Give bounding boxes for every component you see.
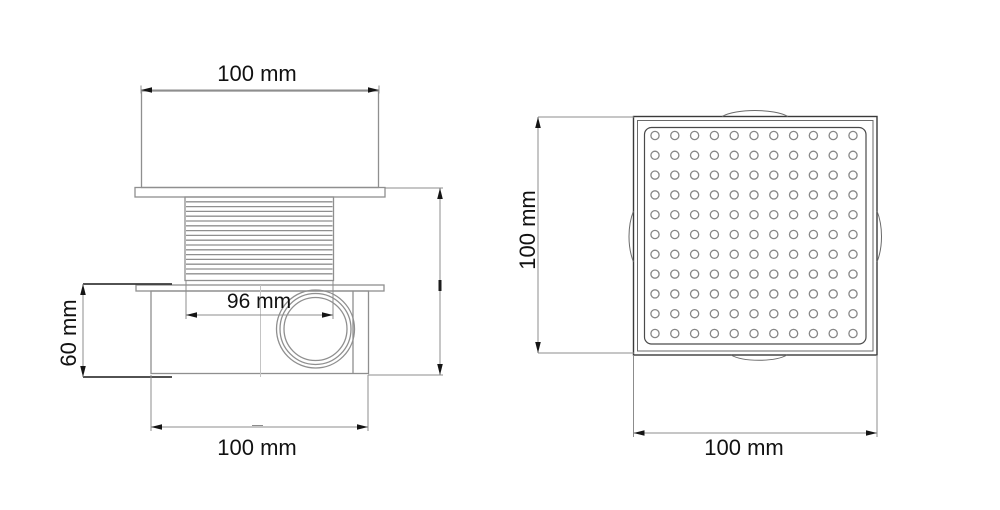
grate-hole	[829, 191, 837, 199]
grate-hole	[691, 270, 699, 278]
top-view: 100 mm 100 mm	[515, 111, 882, 461]
grate-hole	[730, 230, 738, 238]
grate-hole	[730, 250, 738, 258]
grate-hole	[790, 310, 798, 318]
corrugated-riser	[185, 197, 334, 281]
grate-hole	[651, 230, 659, 238]
bottom-tab	[731, 355, 787, 360]
grate-hole	[809, 310, 817, 318]
grate-hole	[750, 230, 758, 238]
grate-hole	[651, 191, 659, 199]
side-view: 100 mm 96 mm 60 mm 100 mm	[56, 61, 443, 460]
grate-hole	[691, 329, 699, 337]
grate-hole	[750, 171, 758, 179]
grate-hole	[849, 250, 857, 258]
grate-hole	[651, 270, 659, 278]
grate-hole	[790, 171, 798, 179]
grate-hole	[770, 310, 778, 318]
grate-hole	[809, 329, 817, 337]
grate-hole	[790, 131, 798, 139]
grate-hole	[770, 230, 778, 238]
grate-hole	[671, 211, 679, 219]
grate-hole	[730, 329, 738, 337]
grate-hole	[849, 230, 857, 238]
grate-hole	[710, 310, 718, 318]
dim-label-grate-width: 100 mm	[704, 435, 783, 460]
grate-hole	[790, 329, 798, 337]
grate-hole	[790, 270, 798, 278]
dimension-height: 60 mm	[56, 284, 172, 377]
dimension-grate-height: 100 mm	[515, 117, 634, 353]
grate-hole	[809, 250, 817, 258]
dim-label-height: 60 mm	[56, 299, 81, 366]
dimension-right-unlabeled	[368, 188, 443, 375]
grate-hole	[730, 171, 738, 179]
grate-hole	[849, 171, 857, 179]
grate-hole	[809, 290, 817, 298]
grate-hole	[710, 290, 718, 298]
outlet-pipe-inner-ring	[284, 298, 347, 361]
grate-hole	[691, 191, 699, 199]
drain-cap	[142, 91, 379, 188]
dim-label-top-width: 100 mm	[217, 61, 296, 86]
grate-hole	[710, 191, 718, 199]
grate-hole	[730, 211, 738, 219]
grate-hole	[770, 290, 778, 298]
grate-hole	[691, 230, 699, 238]
grate-hole	[849, 270, 857, 278]
grate-hole	[770, 329, 778, 337]
grate-hole	[750, 211, 758, 219]
grate-hole	[809, 131, 817, 139]
technical-drawing: 100 mm 96 mm 60 mm 100 mm	[0, 0, 1000, 505]
grate-hole	[750, 191, 758, 199]
riser-ribs	[186, 202, 333, 274]
grate-hole	[651, 310, 659, 318]
dimension-bottom-width: 100 mm	[151, 375, 368, 460]
grate-hole	[710, 230, 718, 238]
grate-hole	[790, 211, 798, 219]
grate-hole	[770, 131, 778, 139]
grate-hole	[691, 250, 699, 258]
grate-hole	[829, 211, 837, 219]
grate-hole	[809, 211, 817, 219]
grate-hole	[770, 171, 778, 179]
grate-hole	[849, 191, 857, 199]
grate-hole	[671, 230, 679, 238]
grate-hole	[849, 211, 857, 219]
grate-hole	[691, 171, 699, 179]
grate-hole	[710, 131, 718, 139]
dim-label-bottom-width: 100 mm	[217, 435, 296, 460]
grate-hole	[770, 151, 778, 159]
grate-hole	[750, 131, 758, 139]
grate-hole	[770, 211, 778, 219]
grate-hole	[730, 310, 738, 318]
grate-hole	[691, 131, 699, 139]
grate-hole	[651, 250, 659, 258]
grate-hole	[829, 250, 837, 258]
grate-hole	[651, 211, 659, 219]
grate-hole	[790, 191, 798, 199]
grate-hole	[651, 290, 659, 298]
grate-hole	[730, 270, 738, 278]
grate-hole	[790, 230, 798, 238]
grate-hole	[671, 270, 679, 278]
grate-hole	[829, 171, 837, 179]
grate-hole	[790, 290, 798, 298]
grate-hole	[809, 171, 817, 179]
grate-hole	[849, 310, 857, 318]
grate-hole	[809, 151, 817, 159]
grate-hole	[750, 310, 758, 318]
grate-hole	[730, 131, 738, 139]
grate-hole	[671, 290, 679, 298]
grate-hole	[691, 151, 699, 159]
dim-label-riser-width: 96 mm	[227, 290, 291, 313]
grate-hole	[829, 329, 837, 337]
grate-hole	[710, 211, 718, 219]
grate-hole	[671, 131, 679, 139]
grate-hole	[770, 250, 778, 258]
grate-hole	[730, 151, 738, 159]
grate-hole	[651, 329, 659, 337]
grate-holes	[651, 131, 857, 337]
grate-hole	[710, 171, 718, 179]
grate-hole	[671, 310, 679, 318]
grate-hole	[710, 250, 718, 258]
dim-label-grate-height: 100 mm	[515, 190, 540, 269]
grate-hole	[829, 230, 837, 238]
grate-hole	[671, 191, 679, 199]
grate-hole	[790, 151, 798, 159]
grate-hole	[671, 151, 679, 159]
grate-hole	[730, 290, 738, 298]
grate-hole	[691, 211, 699, 219]
grate-hole	[770, 270, 778, 278]
grate-hole	[710, 329, 718, 337]
grate-outer-frame	[634, 117, 878, 356]
grate-hole	[671, 171, 679, 179]
grate-hole	[651, 151, 659, 159]
grate-hole	[750, 290, 758, 298]
dimension-top-width: 100 mm	[141, 61, 379, 94]
grate-hole	[790, 250, 798, 258]
grate-hole	[730, 191, 738, 199]
grate-hole	[809, 230, 817, 238]
grate-hole	[770, 191, 778, 199]
grate-hole	[750, 250, 758, 258]
grate-hole	[651, 131, 659, 139]
grate-hole	[651, 171, 659, 179]
grate-hole	[750, 329, 758, 337]
grate-hole	[691, 310, 699, 318]
grate-hole	[691, 290, 699, 298]
grate-hole	[750, 270, 758, 278]
grate-hole	[809, 270, 817, 278]
upper-flange	[135, 188, 385, 198]
grate-hole	[750, 151, 758, 159]
grate-hole	[671, 329, 679, 337]
grate-hole	[849, 131, 857, 139]
grate-hole	[829, 290, 837, 298]
grate-hole	[829, 131, 837, 139]
grate-hole	[710, 151, 718, 159]
top-tab	[722, 111, 788, 117]
grate-hole	[849, 329, 857, 337]
dimension-riser-width: 96 mm	[186, 280, 333, 319]
grate-hole	[671, 250, 679, 258]
grate-hole	[849, 290, 857, 298]
grate-hole	[829, 151, 837, 159]
grate-hole	[809, 191, 817, 199]
drawing-canvas: 100 mm 96 mm 60 mm 100 mm	[0, 0, 1000, 505]
grate-hole	[829, 270, 837, 278]
grate-hole	[829, 310, 837, 318]
dimension-grate-width: 100 mm	[634, 355, 878, 460]
grate-hole	[710, 270, 718, 278]
grate-hole	[849, 151, 857, 159]
